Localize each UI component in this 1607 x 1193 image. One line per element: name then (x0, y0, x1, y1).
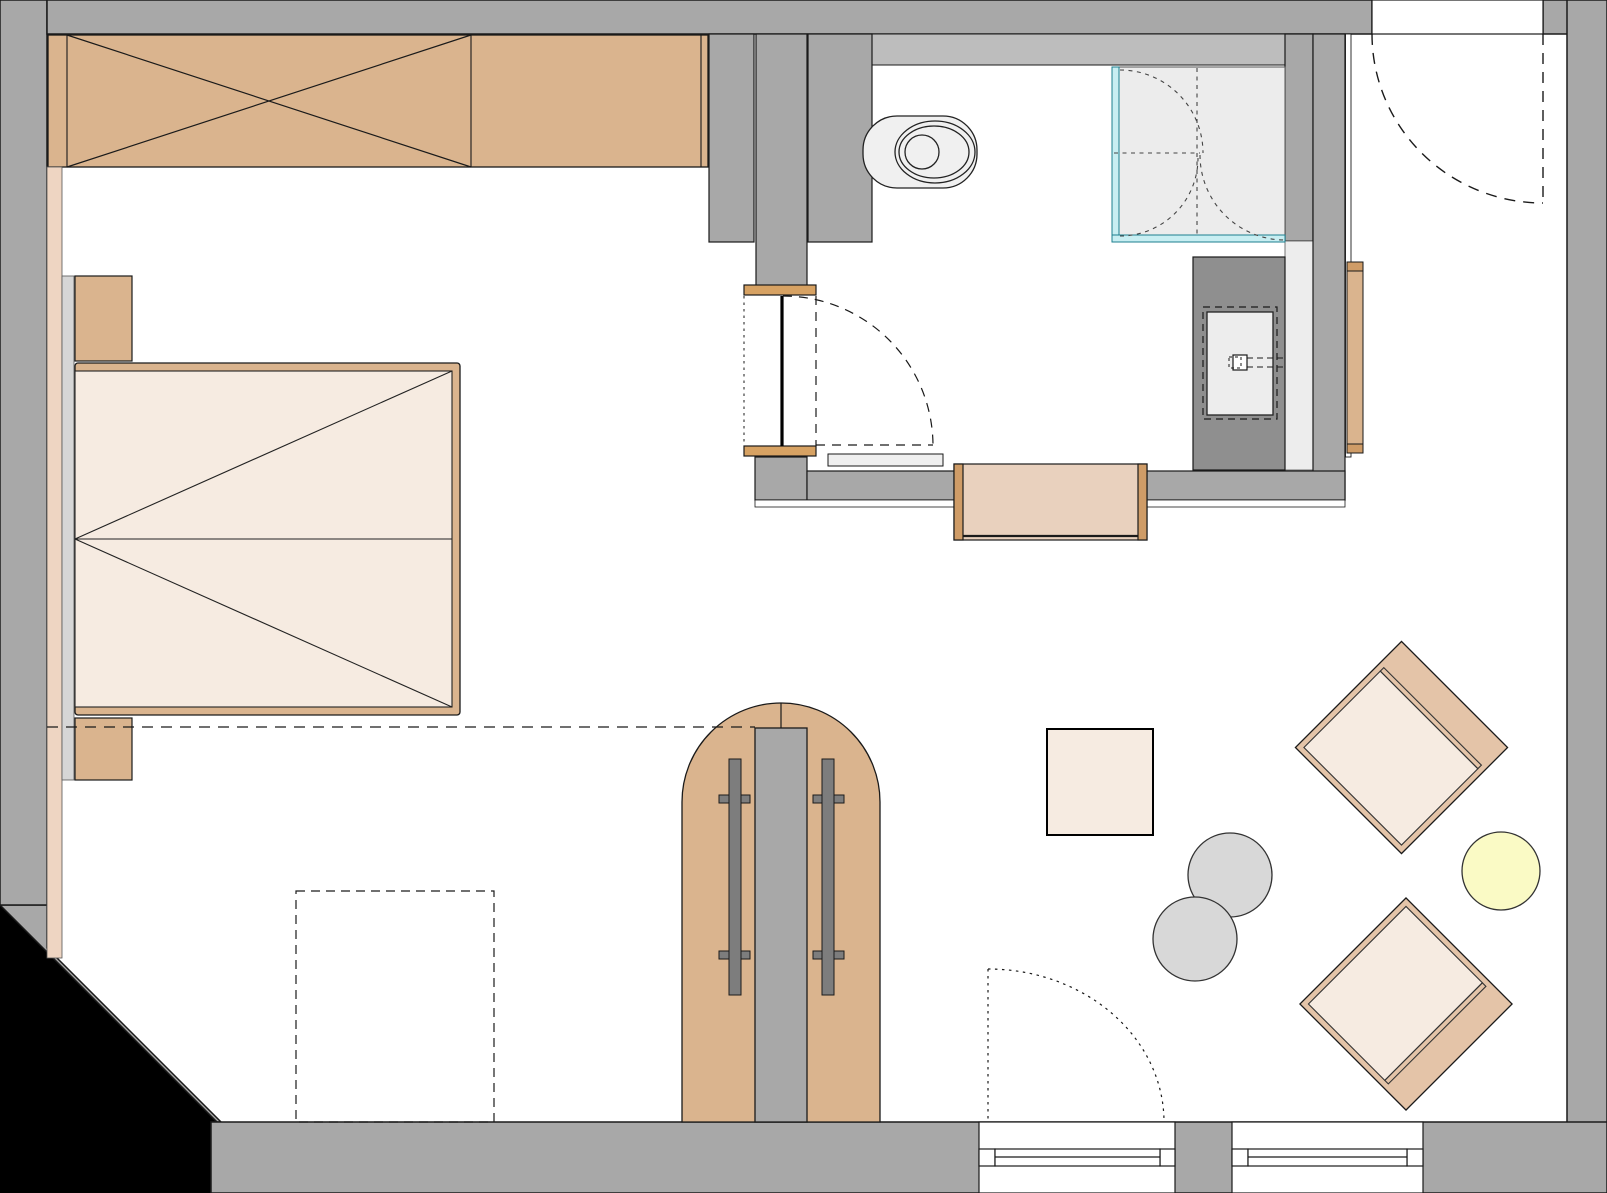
bench-seat[interactable] (954, 464, 1147, 540)
wardrobe-body[interactable] (48, 35, 708, 167)
entry-door-opening (1372, 0, 1543, 34)
floor-lamp[interactable] (1462, 832, 1540, 910)
bath-right-wall-upper (1285, 34, 1313, 241)
wall-pillar (709, 34, 754, 242)
arched-double-door[interactable] (682, 703, 880, 1122)
bench[interactable] (954, 464, 1147, 540)
nightstand[interactable] (75, 276, 132, 361)
window-jamb-block[interactable] (979, 1149, 995, 1166)
arch-center-wall (755, 728, 807, 1122)
bench-armrest (954, 464, 963, 540)
radiator-cap (1347, 262, 1363, 271)
shower-tray (1114, 67, 1285, 241)
window-jamb-block[interactable] (1232, 1149, 1248, 1166)
radiator-cap (1347, 444, 1363, 453)
wardrobe[interactable] (48, 35, 708, 167)
window-jamb-block[interactable] (1407, 1149, 1423, 1166)
bed-side-ledge (62, 276, 74, 780)
toilet-body (863, 116, 977, 188)
top-wall (47, 0, 1372, 34)
window-jamb-block[interactable] (1160, 1149, 1175, 1166)
bath-right-niche (1285, 241, 1313, 470)
vanity[interactable] (1193, 257, 1285, 470)
wall-pillar (808, 34, 872, 242)
bed[interactable] (75, 363, 460, 715)
right-wall (1567, 0, 1607, 1193)
side-table[interactable] (1047, 729, 1153, 835)
shower-glass-left (1112, 67, 1119, 242)
door-sill (744, 446, 816, 456)
bathroom-top-band (872, 34, 1285, 65)
wall-pillar (756, 34, 807, 286)
toilet[interactable] (863, 116, 977, 188)
wall-finish-strip (47, 167, 62, 958)
wall-pillar-lower (755, 457, 807, 500)
floor-plan-canvas (0, 0, 1607, 1193)
radiator[interactable] (1347, 262, 1363, 453)
stool[interactable] (1153, 897, 1237, 981)
floor-plan-page (0, 0, 1607, 1193)
shower-glass-bottom (1112, 235, 1285, 242)
shower[interactable] (1112, 67, 1285, 242)
bath-right-wall (1313, 34, 1345, 500)
left-wall (0, 0, 47, 905)
doormat[interactable] (828, 454, 943, 466)
door-lintel (744, 285, 816, 295)
bench-armrest (1138, 464, 1147, 540)
